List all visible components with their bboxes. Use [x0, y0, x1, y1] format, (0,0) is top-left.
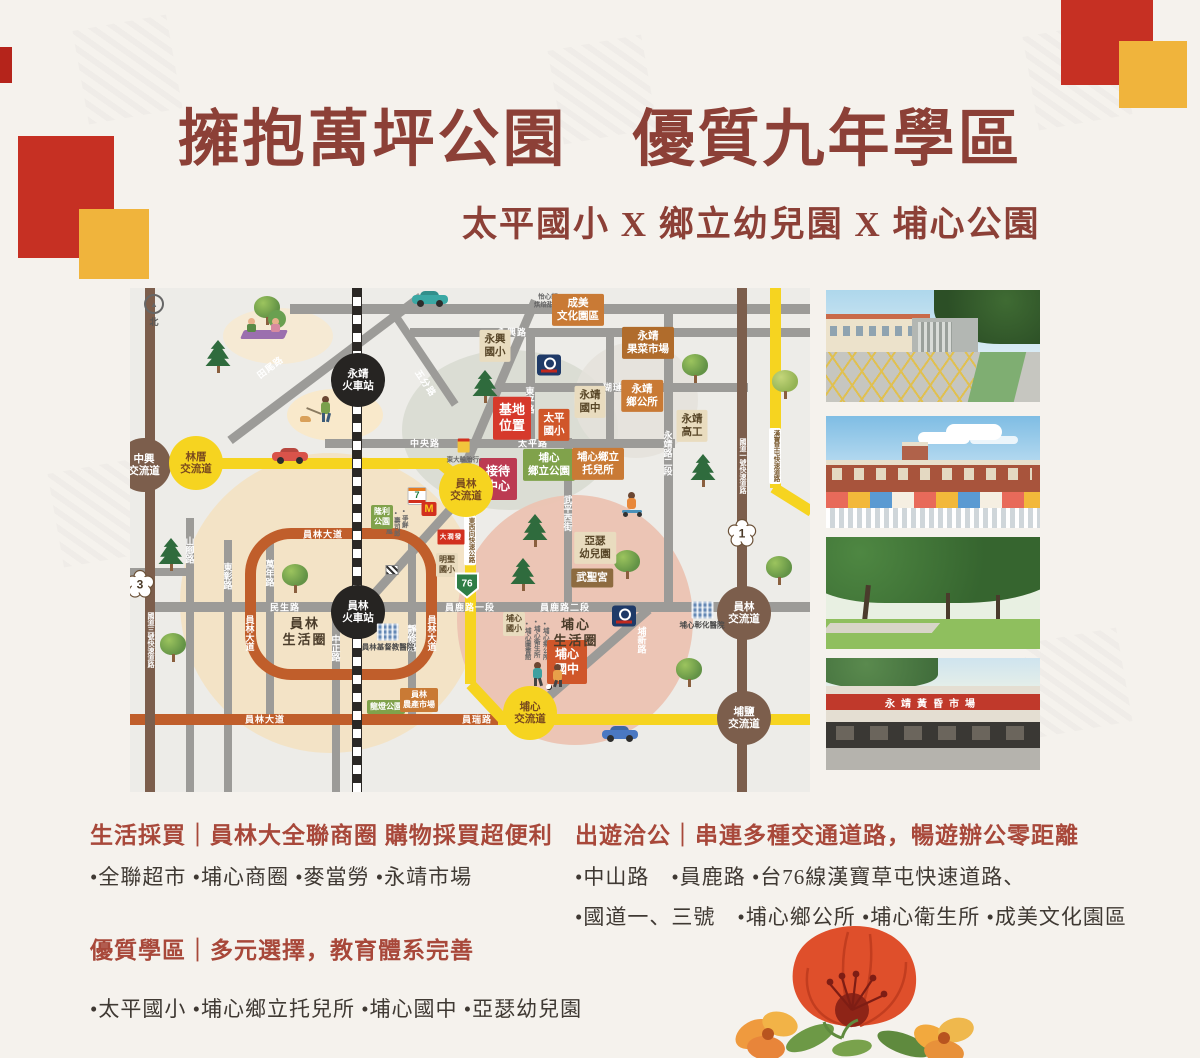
tree-icon [690, 454, 716, 487]
svg-text:76: 76 [461, 579, 473, 590]
pxmart-logo [612, 606, 636, 627]
red-car-illustration [272, 448, 308, 464]
road-name-label: 萬年路 [264, 560, 277, 587]
tree-icon [205, 340, 231, 373]
road-name-label: 員林大道 [245, 713, 285, 726]
puxin-township-park-label: 埔心 鄉立公園 [523, 449, 575, 481]
road-central [325, 439, 675, 448]
yongjing-market-label: 永靖 果菜市場 [622, 327, 674, 359]
road-name-label: 埔新路 [636, 627, 649, 654]
road-name-label: 民生路 [270, 601, 300, 614]
puxin-elementary-label: 埔心 國小 [503, 612, 525, 636]
compass-north-indicator: ▲ 北 [144, 294, 164, 328]
svg-text:1: 1 [739, 527, 746, 541]
photo-color-wall [826, 492, 1040, 508]
decor-square-sliver [0, 47, 12, 83]
pxmart-logo [537, 355, 561, 376]
compass-label: 北 [149, 317, 158, 327]
area-map: ▲ 北 永興路瑚璉路中央路太平路民生路員鹿路一段員鹿路二段員林大道員林大道員瑞路… [130, 288, 810, 792]
decor-square-yellow-left [79, 209, 149, 279]
photo-trunk [996, 595, 1000, 621]
yuanlin-interchange-hwy1: 員林 交流道 [717, 586, 771, 640]
road-name-label: 東西向快速公路 [464, 515, 476, 565]
road-name-label: 東彰路 [222, 563, 235, 590]
highway-shield-1: 1 [727, 519, 757, 554]
road-name-label: 國道三號快速道路 [145, 612, 155, 668]
school-gate-photo [826, 290, 1040, 402]
road-name-label: 國道一號快速道路 [737, 438, 747, 494]
photo-trees [826, 658, 938, 688]
tree-icon [766, 556, 792, 585]
tree-icon [772, 370, 798, 399]
photo-road [826, 748, 1040, 770]
photo-white-fence [826, 508, 1040, 528]
section-items-school: •太平國小 •埔心鄉立托兒所 •埔心國中 •亞瑟幼兒園 [90, 993, 582, 1023]
tree-icon [614, 550, 640, 579]
yongxing-elementary-label: 永興 國小 [480, 330, 511, 362]
tree-icon [510, 558, 536, 591]
teal-car-illustration [412, 291, 448, 307]
tree-icon [682, 354, 708, 383]
road-name-label: 員林大道 [244, 615, 257, 651]
section-items-shopping: •全聯超市 •埔心商圈 •麥當勞 •永靖市場 [90, 861, 472, 891]
yongjing-township-office-label: 永靖 鄉公所 [621, 380, 663, 412]
yuanlin-christian-hospital-icon: 員林基督教醫院 [362, 624, 415, 653]
page-title: 擁抱萬坪公園 優質九年學區 [0, 88, 1200, 178]
road-name-label: 員林大道 [303, 528, 343, 541]
yuanlin-interchange-76: 員林 交流道 [439, 463, 493, 517]
photo-stalls [836, 726, 1030, 740]
tree-icon [522, 514, 548, 547]
yuanlin-living-circle-label: 員林 生活圈 [277, 613, 332, 652]
big-poppy [793, 926, 917, 1027]
photo-cloud [946, 424, 1002, 440]
photo-windows [832, 468, 1032, 480]
tree-icon [282, 564, 308, 593]
kindergarten-photo [826, 416, 1040, 528]
mcdonalds-logo: M [422, 502, 437, 516]
photo-tree-canopy [826, 537, 1040, 603]
road-name-label: 永靖路二段 [662, 431, 675, 476]
blue-car-illustration [602, 726, 638, 742]
market-sign: 永靖黃昏市場 [885, 695, 981, 710]
tiny-poi-text: •埔心衛生所 [531, 618, 539, 658]
yuanlin-farm-market-label: 員林 農產市場 [400, 688, 438, 712]
hwy3-vert [145, 288, 155, 792]
tree-icon [158, 538, 184, 571]
road-name-label: 漢寶草屯快速道路 [769, 428, 781, 484]
puyan-interchange: 埔鹽 交流道 [717, 691, 771, 745]
road-name-label: 武平西街 [562, 495, 575, 531]
puxin-interchange: 埔心 交流道 [503, 686, 557, 740]
photo-hatched-lines [826, 352, 976, 402]
photo-path [826, 623, 940, 633]
railroad-crossing-sign [386, 565, 399, 575]
flower-illustration [692, 926, 1022, 1058]
photo-trunk [946, 593, 950, 621]
page-subtitle: 太平國小 X 鄉立幼兒園 X 埔心公園 [462, 196, 1041, 247]
photo-gate [918, 322, 952, 352]
tree-icon [676, 658, 702, 687]
site-location-label: 基地 位置 [493, 397, 531, 440]
chengmei-culture-park-label: 成美 文化園區 [552, 294, 604, 326]
highway-shield-3: 3 [130, 570, 155, 605]
wusheng-temple-label: 武聖宮 [571, 568, 613, 587]
park-photo [826, 537, 1040, 649]
tree-icon [160, 633, 186, 662]
road-name-label: 員林大道 [426, 615, 439, 651]
road-name-label: 員鹿路二段 [540, 601, 590, 614]
puxin-living-circle-label: 埔心 生活圈 [548, 614, 603, 653]
hwy76-right-curve [770, 482, 810, 515]
road-name-label: 員瑞路 [462, 713, 492, 726]
market-photo: 永靖黃昏市場 [826, 658, 1040, 770]
shop-icon: 東大輪胎行• [447, 439, 482, 464]
real-estate-flyer: 擁抱萬坪公園 優質九年學區 太平國小 X 鄉立幼兒園 X 埔心公園 ▲ 北 永興… [0, 0, 1200, 1058]
tiny-poi-text: •爭鮮 [399, 508, 407, 528]
svg-text:3: 3 [137, 578, 144, 592]
section-heading-travel: 出遊洽公｜串連多種交通道路，暢遊辦公零距離 [575, 816, 1079, 850]
section-heading-shopping: 生活採買｜員林大全聯商圈 購物採買超便利 [90, 816, 553, 850]
section-heading-school: 優質學區｜多元選擇，教育體系完善 [90, 931, 474, 965]
compass-icon: ▲ [144, 294, 164, 314]
puxin-changhua-hospital-icon: 埔心彰化醫院 [680, 602, 725, 631]
arthur-kindergarten-label: 亞瑟 幼兒園 [574, 532, 616, 564]
puxin-nursery-label: 埔心鄉立 托兒所 [572, 448, 624, 480]
lincuo-interchange: 林厝 交流道 [169, 436, 223, 490]
yongjing-junior-high-label: 永靖 國中 [575, 386, 606, 418]
yongjing-train-station: 永靖 火車站 [331, 353, 385, 407]
taiping-elementary-label: 太平 國小 [539, 409, 570, 441]
road-name-label: 山腳路 [184, 537, 197, 564]
park-label: 隆利 公園 [371, 505, 393, 529]
highway-shield-76: 76 [454, 572, 480, 605]
yongjing-vocational-school-label: 永靖 高工 [677, 410, 708, 442]
road-name-label: 中央路 [410, 437, 440, 450]
section-items-travel-1: •中山路 •員鹿路 •台76線漢寶草屯快速道路、 [575, 861, 1025, 891]
zhongxing-interchange: 中興 交流道 [130, 438, 171, 492]
hypermart-logo: 大潤發 [438, 530, 465, 545]
